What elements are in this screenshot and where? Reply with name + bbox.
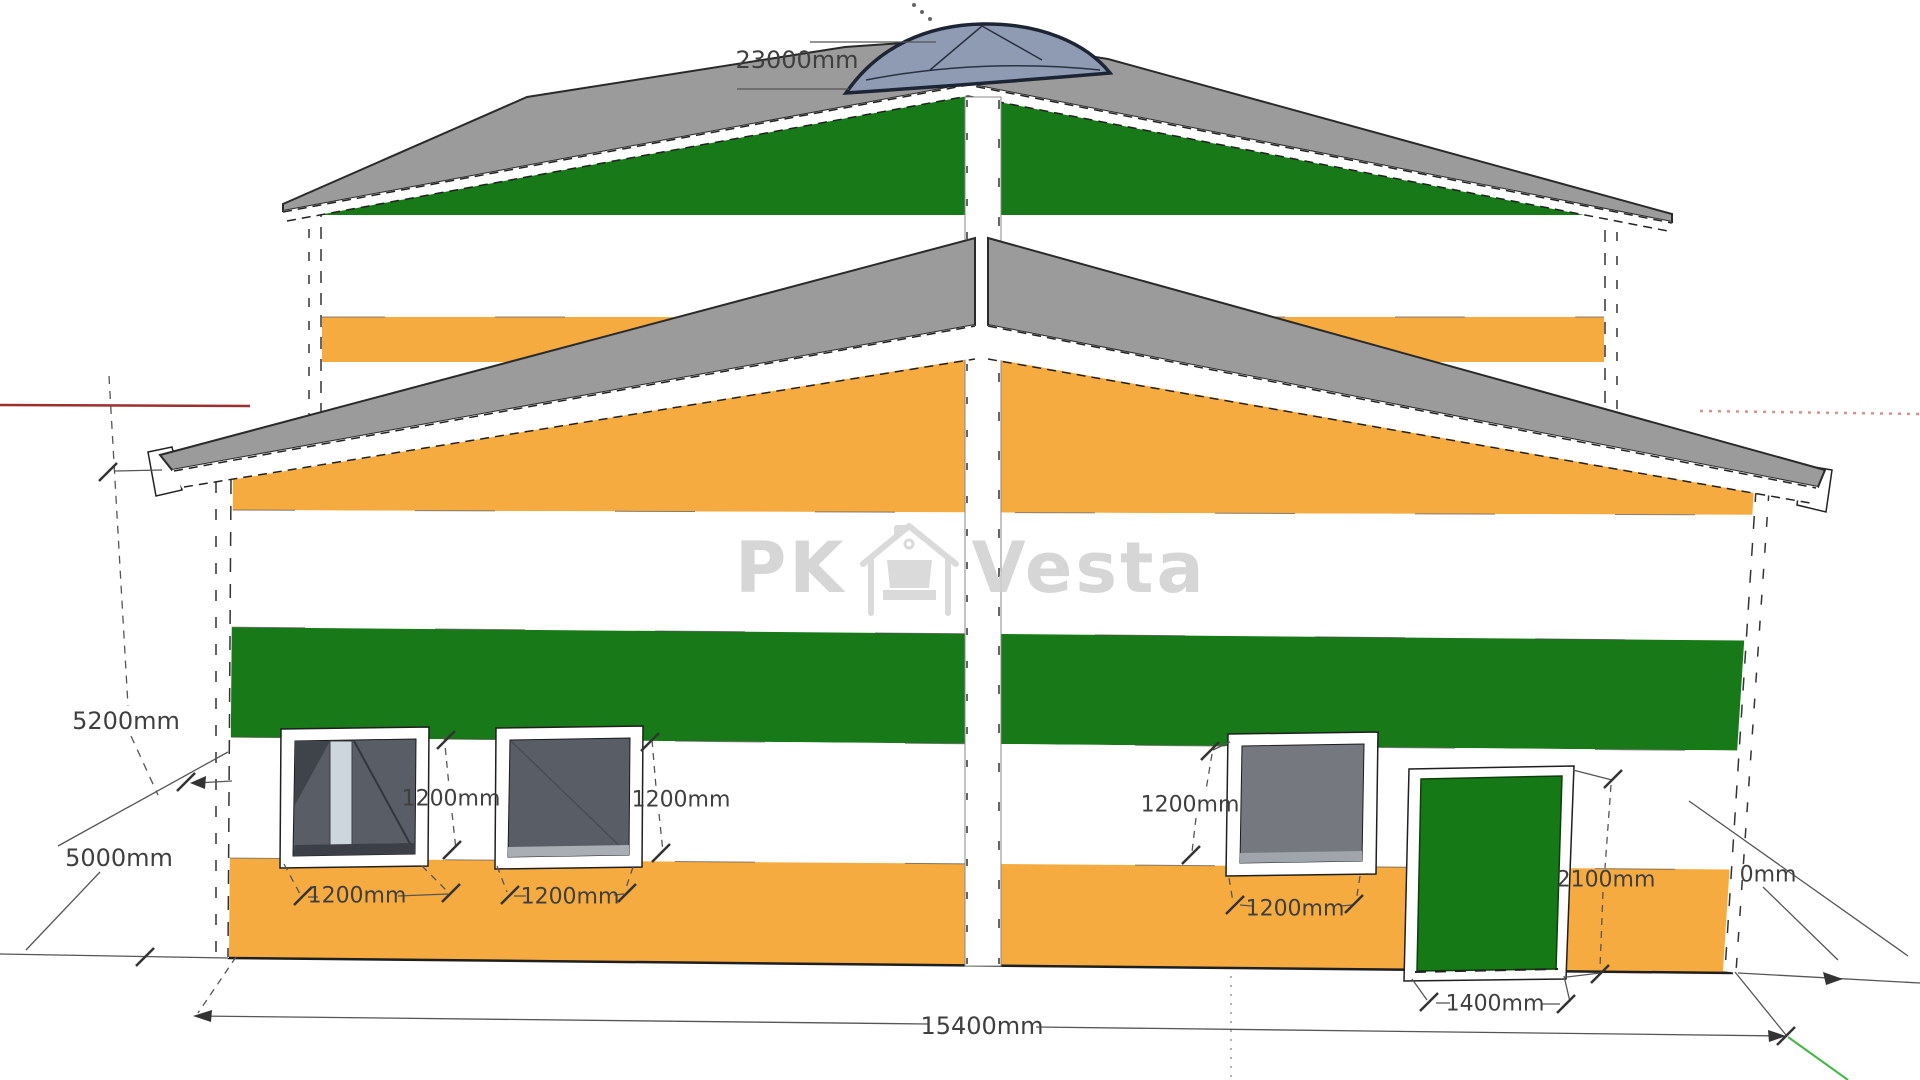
entry-door	[1404, 766, 1574, 981]
red-axis-dotted-line	[1700, 411, 1920, 414]
dim-window3-width-label: 1200mm	[1246, 897, 1345, 922]
door-panel	[1417, 776, 1562, 971]
elevation-canvas: PK Vesta 23000mm 5200mm 5000mm 1200mm 12…	[0, 0, 1920, 1080]
center-column	[965, 97, 1001, 966]
dim-window2-height-label: 1200mm	[632, 788, 731, 813]
dim-upper-height-label: 5200mm	[72, 707, 180, 735]
corner-post-upper-left	[308, 204, 322, 420]
dim-window2-width-label: 1200mm	[521, 885, 620, 910]
window-1-sill-shadow	[293, 843, 415, 856]
dim-window1-width-label: 1200mm	[308, 884, 407, 909]
dim-ridge-width-label: 23000mm	[735, 46, 858, 74]
window-2-sill	[508, 845, 629, 857]
dim-window1-height-label: 1200mm	[402, 787, 501, 812]
dim-window3-height-label: 1200mm	[1141, 793, 1240, 818]
green-axis-line	[1788, 1037, 1848, 1080]
window-1-interior-column	[330, 741, 352, 852]
window-3-pane	[1240, 744, 1364, 863]
dim-total-width-label: 15400mm	[920, 1012, 1043, 1040]
corner-post-upper-right	[1604, 206, 1618, 420]
dim-right-clipped-label: 0mm	[1740, 863, 1797, 888]
window-3	[1226, 732, 1378, 876]
red-axis-line	[0, 405, 250, 406]
dim-door-height-label: 2100mm	[1557, 868, 1656, 893]
window-3-sill	[1240, 851, 1362, 863]
guide-dots-above-dome	[912, 3, 932, 21]
dim-door-width-label: 1400mm	[1446, 992, 1545, 1017]
building-elevation-drawing	[0, 0, 1920, 1080]
dim-lower-height-label: 5000mm	[65, 844, 173, 872]
window-2	[495, 726, 643, 869]
